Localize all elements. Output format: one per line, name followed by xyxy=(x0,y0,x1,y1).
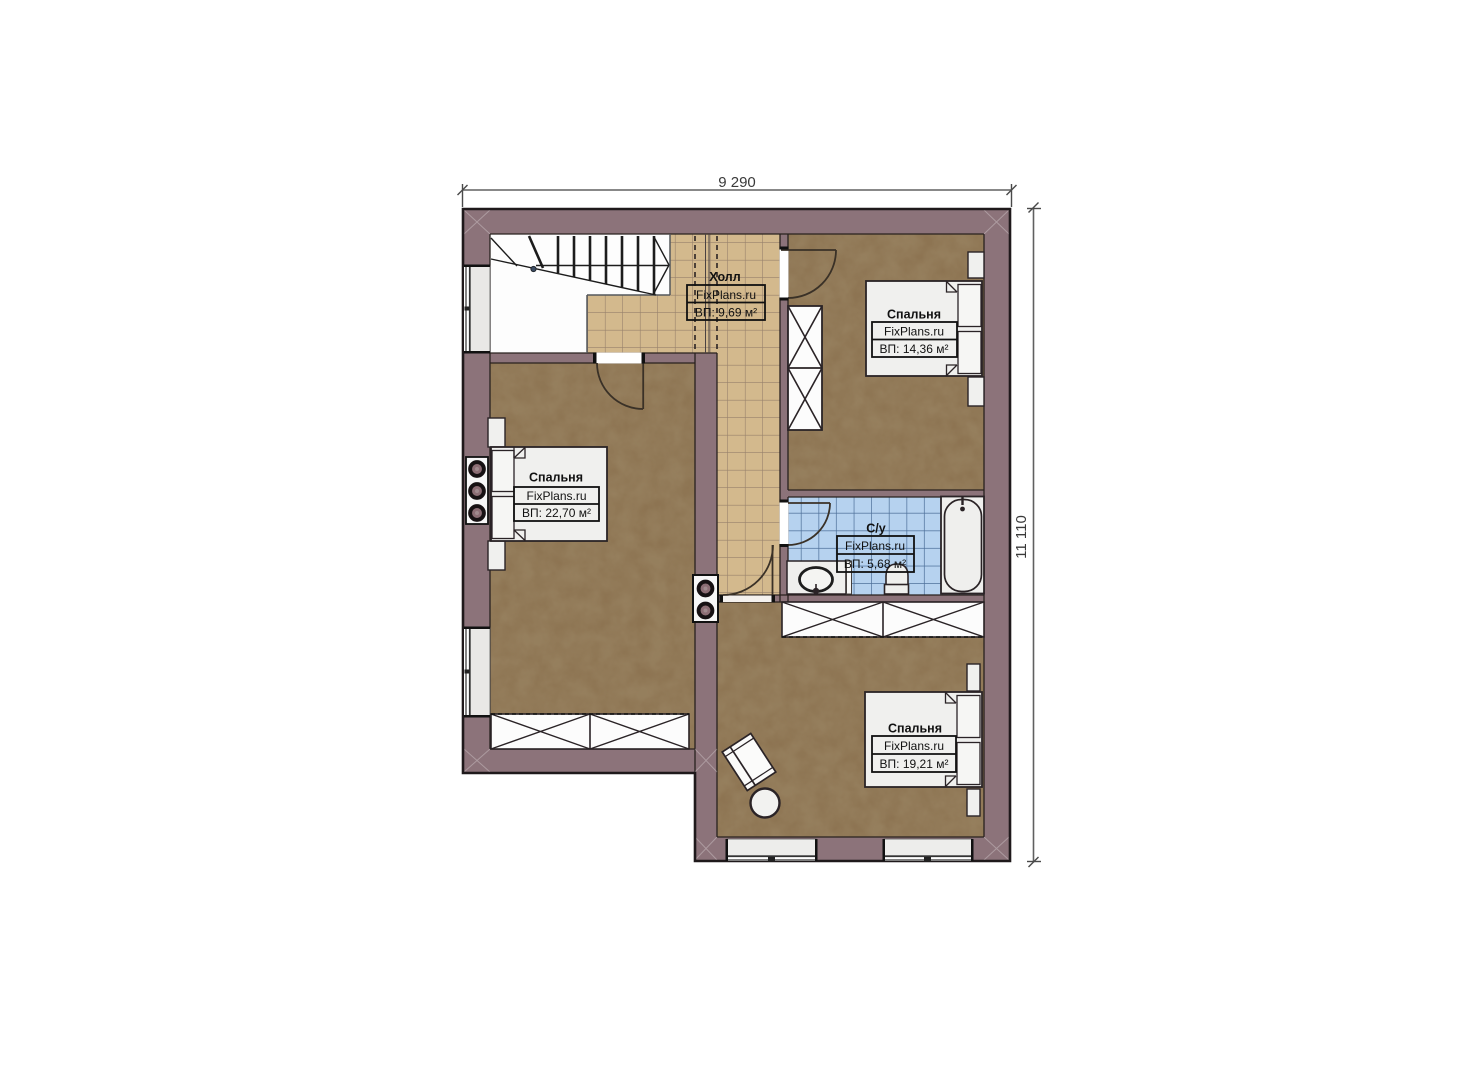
svg-text:С/у: С/у xyxy=(866,522,886,536)
svg-text:ВП: 19,21 м²: ВП: 19,21 м² xyxy=(880,757,949,771)
svg-text:FixPlans.ru: FixPlans.ru xyxy=(884,325,944,339)
svg-text:Спальня: Спальня xyxy=(529,471,583,485)
svg-text:Спальня: Спальня xyxy=(888,722,942,736)
svg-text:ВП: 22,70 м²: ВП: 22,70 м² xyxy=(522,506,591,520)
svg-text:ВП: 14,36 м²: ВП: 14,36 м² xyxy=(880,342,949,356)
svg-text:FixPlans.ru: FixPlans.ru xyxy=(884,739,944,753)
svg-text:FixPlans.ru: FixPlans.ru xyxy=(526,489,586,503)
svg-text:11 110: 11 110 xyxy=(1013,515,1030,559)
svg-text:Холл: Холл xyxy=(709,270,740,284)
svg-text:ВП: 9,69 м²: ВП: 9,69 м² xyxy=(695,306,757,320)
svg-text:ВП: 5,68 м²: ВП: 5,68 м² xyxy=(844,557,906,571)
svg-text:FixPlans.ru: FixPlans.ru xyxy=(845,539,905,553)
svg-text:FixPlans.ru: FixPlans.ru xyxy=(696,288,756,302)
svg-text:Спальня: Спальня xyxy=(887,308,941,322)
svg-text:9 290: 9 290 xyxy=(718,174,756,191)
